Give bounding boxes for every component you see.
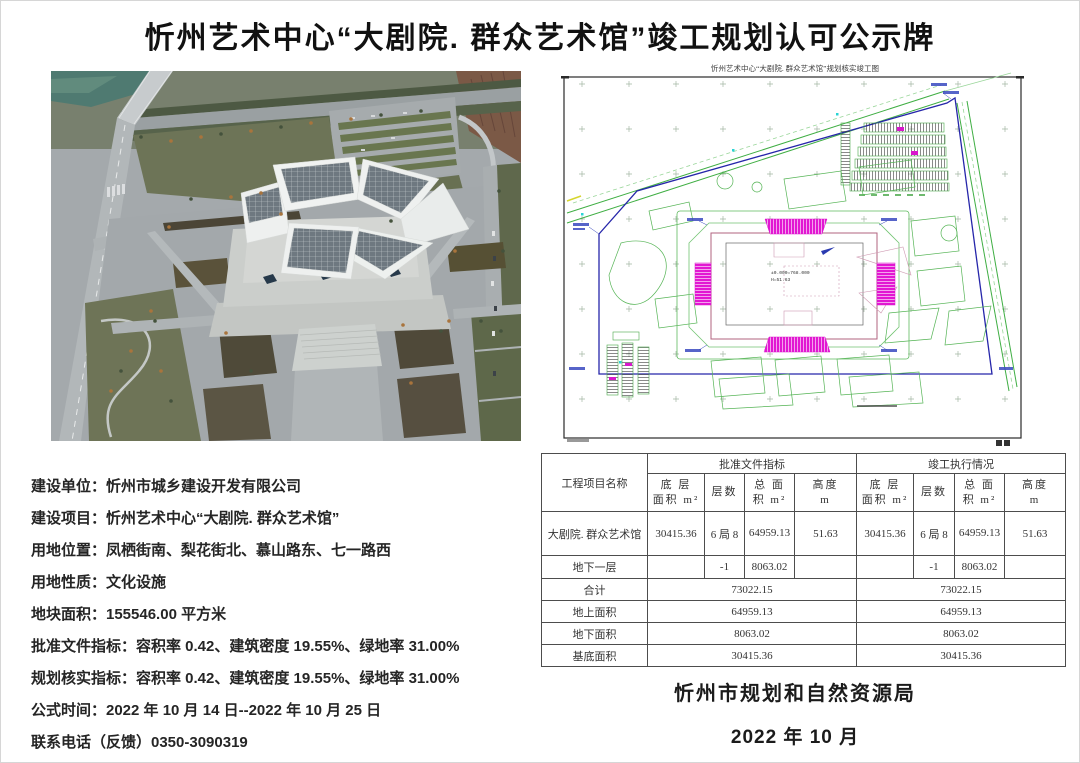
plan-height-label: H=51.63	[771, 277, 791, 283]
table-cell: 51.63	[1005, 512, 1066, 556]
table-cell	[648, 556, 705, 579]
info-publicity-period: 公式时间：2022 年 10 月 14 日--2022 年 10 月 25 日	[31, 695, 536, 727]
table-cell: 64959.13	[648, 601, 857, 623]
table-cell: 8063.02	[857, 623, 1066, 645]
info-verified-indicators: 规划核实指标：容积率 0.42、建筑密度 19.55%、绿地率 31.00%	[31, 663, 536, 695]
notice-board: 忻州艺术中心“大剧院. 群众艺术馆”竣工规划认可公示牌	[0, 0, 1080, 763]
table-cell: 8063.02	[648, 623, 857, 645]
header-approved-group: 批准文件指标	[648, 454, 857, 474]
metrics-table-wrap: 工程项目名称 批准文件指标 竣工执行情况 底 层面积 m² 层数 总 面积 m²…	[541, 453, 1066, 667]
project-info: 建设单位：忻州市城乡建设开发有限公司 建设项目：忻州艺术中心“大剧院. 群众艺术…	[31, 471, 536, 759]
issue-date: 2022 年 10 月	[559, 722, 1031, 749]
info-project-name: 建设项目：忻州艺术中心“大剧院. 群众艺术馆”	[31, 503, 536, 535]
table-cell: 30415.36	[648, 512, 705, 556]
issuing-authority: 忻州市规划和自然资源局	[559, 677, 1031, 706]
header-cell: 层数	[914, 474, 955, 512]
table-cell: 30415.36	[648, 645, 857, 667]
header-cell: 高度m	[795, 474, 857, 512]
table-cell: -1	[914, 556, 955, 579]
header-cell: 总 面积 m²	[745, 474, 795, 512]
table-cell: 64959.13	[955, 512, 1005, 556]
plan-level-label: ±0.000=768.000	[771, 270, 810, 276]
header-cell: 高度m	[1005, 474, 1066, 512]
info-contact-phone: 联系电话（反馈）0350-3090319	[31, 727, 536, 759]
info-land-use: 用地性质：文化设施	[31, 567, 536, 599]
header-cell: 层数	[705, 474, 745, 512]
site-plan-drawing: 忻州艺术中心“大剧院. 群众艺术馆”规划核实竣工图	[559, 61, 1031, 447]
page-title: 忻州艺术中心“大剧院. 群众艺术馆”竣工规划认可公示牌	[1, 13, 1079, 57]
table-cell	[795, 556, 857, 579]
table-row-below-ground: 地下面积 8063.02 8063.02	[542, 623, 1066, 645]
table-cell: 地上面积	[542, 601, 648, 623]
table-cell: 30415.36	[857, 512, 914, 556]
table-cell: 30415.36	[857, 645, 1066, 667]
table-cell: -1	[705, 556, 745, 579]
table-cell: 51.63	[795, 512, 857, 556]
info-location: 用地位置：凤栖街南、梨花街北、慕山路东、七一路西	[31, 535, 536, 567]
header-completed-group: 竣工执行情况	[857, 454, 1066, 474]
table-cell: 基底面积	[542, 645, 648, 667]
metrics-table: 工程项目名称 批准文件指标 竣工执行情况 底 层面积 m² 层数 总 面积 m²…	[541, 453, 1066, 667]
info-plot-area: 地块面积：155546.00 平方米	[31, 599, 536, 631]
table-cell: 73022.15	[648, 579, 857, 601]
aerial-photo	[51, 71, 521, 441]
site-plan-graphic: 忻州艺术中心“大剧院. 群众艺术馆”规划核实竣工图	[559, 61, 1031, 447]
header-cell: 总 面积 m²	[955, 474, 1005, 512]
plan-title: 忻州艺术中心“大剧院. 群众艺术馆”规划核实竣工图	[711, 63, 879, 73]
table-cell: 64959.13	[857, 601, 1066, 623]
table-cell: 地下一层	[542, 556, 648, 579]
table-row-total: 合计 73022.15 73022.15	[542, 579, 1066, 601]
info-construction-unit: 建设单位：忻州市城乡建设开发有限公司	[31, 471, 536, 503]
header-project-name: 工程项目名称	[542, 454, 648, 512]
table-row-footprint: 基底面积 30415.36 30415.36	[542, 645, 1066, 667]
aerial-photo-graphic	[51, 71, 521, 441]
header-cell: 底 层面积 m²	[648, 474, 705, 512]
table-row-above-ground: 地上面积 64959.13 64959.13	[542, 601, 1066, 623]
header-cell: 底 层面积 m²	[857, 474, 914, 512]
table-cell	[857, 556, 914, 579]
table-header-row-1: 工程项目名称 批准文件指标 竣工执行情况	[542, 454, 1066, 474]
table-cell: 合计	[542, 579, 648, 601]
table-cell: 8063.02	[955, 556, 1005, 579]
table-cell: 6 局 8	[914, 512, 955, 556]
table-cell: 6 局 8	[705, 512, 745, 556]
table-cell	[1005, 556, 1066, 579]
table-cell: 地下面积	[542, 623, 648, 645]
issuer-block: 忻州市规划和自然资源局 2022 年 10 月	[559, 677, 1031, 749]
table-cell: 大剧院. 群众艺术馆	[542, 512, 648, 556]
table-cell: 73022.15	[857, 579, 1066, 601]
table-cell: 8063.02	[745, 556, 795, 579]
info-approved-indicators: 批准文件指标：容积率 0.42、建筑密度 19.55%、绿地率 31.00%	[31, 631, 536, 663]
table-row-theater: 大剧院. 群众艺术馆 30415.36 6 局 8 64959.13 51.63…	[542, 512, 1066, 556]
table-row-basement: 地下一层 -1 8063.02 -1 8063.02	[542, 556, 1066, 579]
table-cell: 64959.13	[745, 512, 795, 556]
